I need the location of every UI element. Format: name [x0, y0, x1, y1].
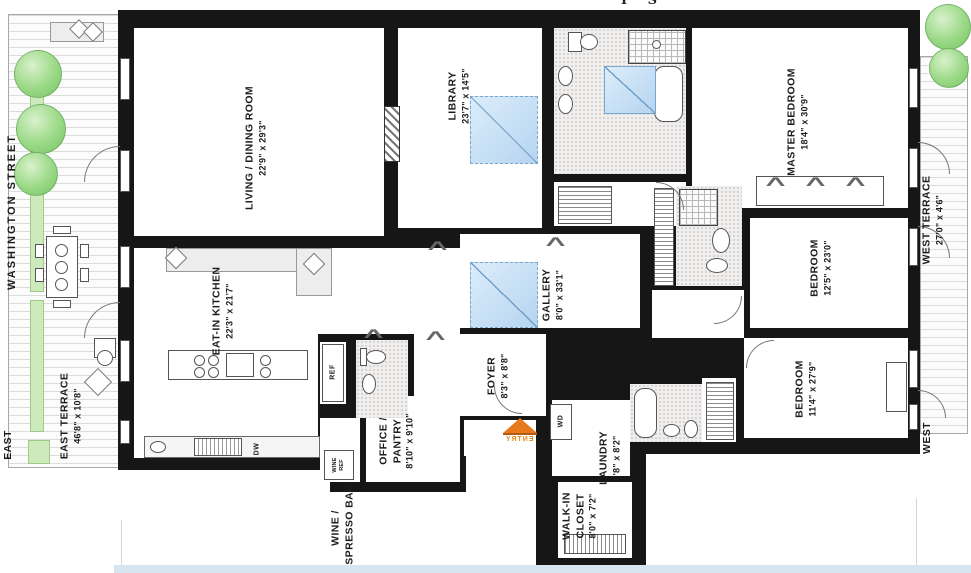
- label-wine-ref: WINEREF: [332, 457, 346, 472]
- burner: [260, 367, 271, 378]
- burner: [194, 355, 205, 366]
- floor-plan: ∧ ∧ ∧ ∧ ∧ ∧ ∧ ENTRY WASHINGTON STREET EA…: [0, 0, 971, 573]
- entry-label: ENTRY: [505, 436, 533, 443]
- cooktop: [226, 353, 254, 377]
- chair: [80, 268, 89, 282]
- chair: [80, 244, 89, 258]
- bed-pillow: ∧: [841, 176, 870, 186]
- tree: [16, 104, 66, 154]
- label-wd: WD: [556, 415, 565, 428]
- master-bath-skylight: [604, 66, 656, 114]
- kitchen-sink: [150, 441, 166, 453]
- burner: [194, 367, 205, 378]
- range: [194, 438, 242, 456]
- label-library: LIBRARY23'7" x 14'5": [446, 68, 471, 123]
- label-master-bedroom: MASTER BEDROOM18'4" x 30'9": [785, 68, 810, 176]
- street-label-washington: WASHINGTON STREET: [5, 134, 19, 290]
- tree: [14, 152, 58, 196]
- burner: [208, 367, 219, 378]
- window: [909, 350, 918, 388]
- powder-sink: [362, 374, 376, 394]
- master-tub: [654, 66, 683, 122]
- chair: [53, 300, 71, 308]
- window: [120, 246, 130, 288]
- label-west-terrace: WEST TERRACE27'0" x 4'6": [920, 176, 945, 265]
- window: [909, 228, 918, 266]
- label-ref: REF: [328, 364, 337, 380]
- burner: [260, 355, 271, 366]
- label-east-terrace: EAST TERRACE46'8" x 10'8": [58, 373, 83, 459]
- entry-arrow-base: [503, 433, 537, 435]
- bath2-toilet: [706, 258, 728, 273]
- clipped-top-label: I S: [621, 0, 669, 8]
- gallery-skylight: [470, 262, 538, 328]
- window: [909, 148, 918, 188]
- master-sink: [558, 66, 573, 86]
- label-dw: DW: [252, 443, 261, 456]
- label-laundry: LAUNDRY6'8" x 8'2": [597, 431, 622, 485]
- compass-east: EAST: [2, 430, 16, 460]
- entry-arrow: [503, 418, 537, 433]
- window: [120, 340, 130, 382]
- label-office-pantry: OFFICE /PANTRY8'10" x 9'10": [378, 413, 417, 468]
- closet-door: ∧: [359, 328, 388, 338]
- closet-door: ∧: [423, 240, 452, 250]
- label-wine-espresso: WINE /ESPRESSO BAR: [329, 484, 356, 572]
- closet-door: ∧: [421, 330, 450, 340]
- window: [120, 420, 130, 444]
- column: [384, 106, 400, 162]
- chair: [35, 244, 44, 258]
- powder-toilet-tank: [360, 348, 367, 366]
- bath3-toilet: [684, 420, 698, 438]
- bath3-sink: [663, 424, 680, 437]
- powder-toilet: [366, 350, 386, 364]
- window: [120, 58, 130, 100]
- label-gallery: GALLERY8'0" x 33'1": [540, 269, 565, 322]
- label-living-dining: LIVING / DINING ROOM22'9" x 29'3": [243, 86, 268, 210]
- burner: [208, 355, 219, 366]
- bedroom3-closet: [706, 382, 734, 440]
- plate: [55, 261, 68, 274]
- sidewalk-line: [121, 520, 122, 565]
- bed-pillow: ∧: [761, 176, 790, 186]
- closet-door: ∧: [541, 236, 570, 246]
- planter: [30, 300, 44, 432]
- dressing-closet: [558, 186, 612, 224]
- window: [120, 150, 130, 192]
- terrace-side-table: [97, 350, 113, 366]
- label-eat-in-kitchen: EAT-IN KITCHEN22'3" x 21'7": [210, 267, 235, 356]
- plate: [55, 278, 68, 291]
- master-toilet: [580, 34, 598, 50]
- tree: [929, 48, 969, 88]
- label-walk-in-closet: WALK-INCLOSET8'0" x 7'2": [561, 492, 600, 540]
- bath3-tub: [634, 388, 657, 438]
- shower-drain: [652, 40, 661, 49]
- sidewalk-line: [916, 498, 917, 565]
- tree: [14, 50, 62, 98]
- chair: [35, 268, 44, 282]
- window: [909, 68, 918, 108]
- sidewalk-strip: [114, 565, 971, 573]
- window: [909, 404, 918, 430]
- label-foyer: FOYER8'3" x 8'8": [485, 353, 510, 398]
- compass-west: WEST: [921, 422, 935, 454]
- tree: [925, 4, 971, 50]
- planter: [28, 440, 50, 464]
- chair: [53, 226, 71, 234]
- label-bedroom-3: BEDROOM11'4" x 27'9": [793, 360, 818, 418]
- bedroom3-bed: [886, 362, 907, 412]
- bed-pillow: ∧: [801, 176, 830, 186]
- label-bedroom-2: BEDROOM12'5" x 23'0": [808, 239, 833, 297]
- master-sink: [558, 94, 573, 114]
- bath2-sink: [712, 228, 730, 253]
- library-skylight: [470, 96, 538, 164]
- bath2-shower: [679, 189, 718, 226]
- plate: [55, 244, 68, 257]
